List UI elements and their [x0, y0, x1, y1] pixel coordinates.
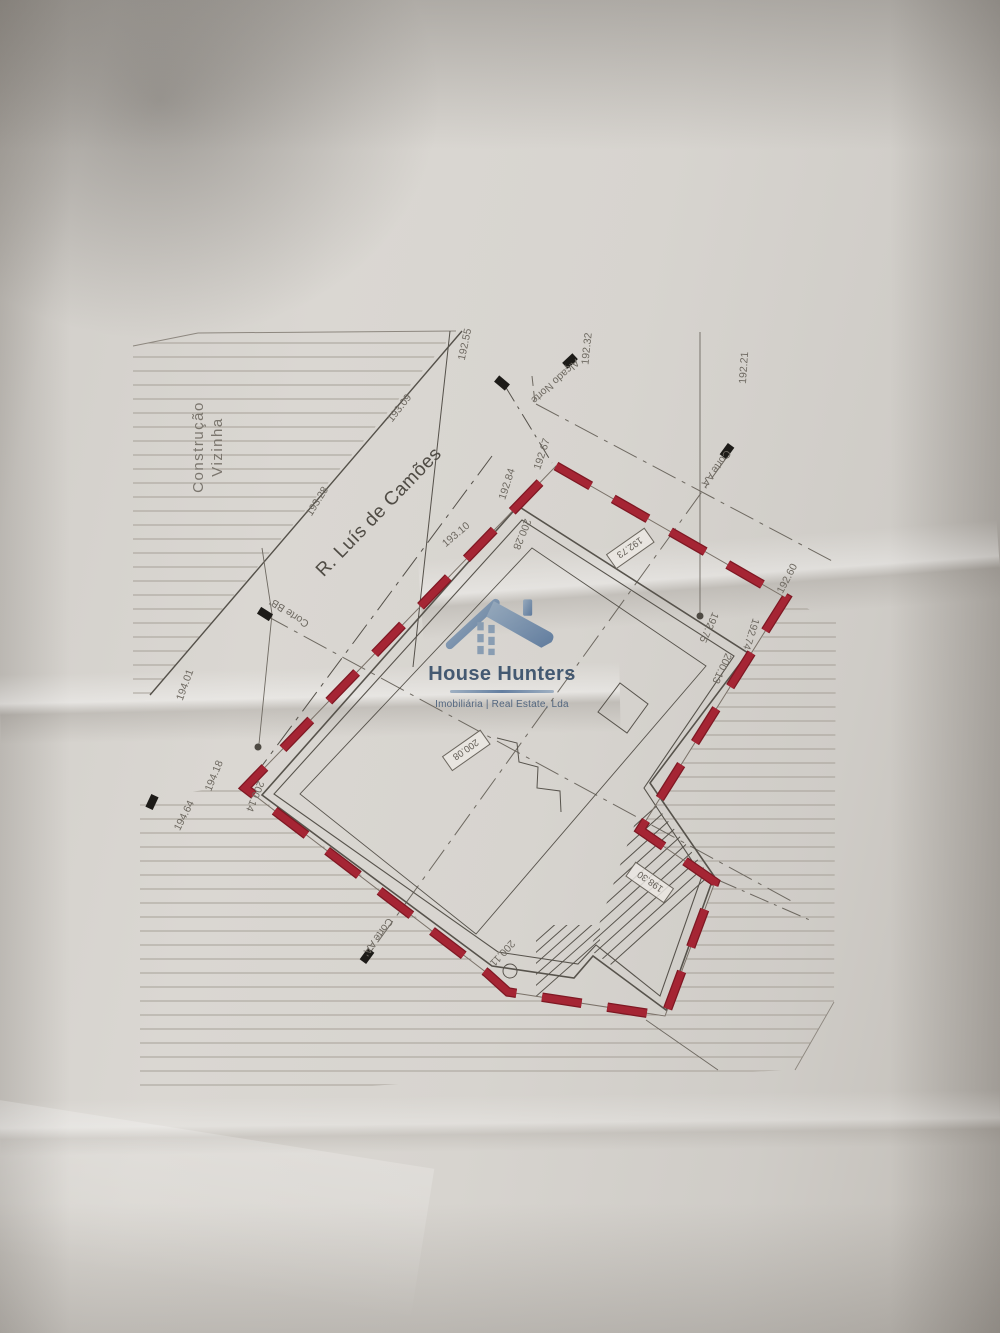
- window-grid: [477, 622, 494, 655]
- boxed-elevation-labels: 192.73200.08198.30: [443, 528, 674, 902]
- house-body-shape: [486, 601, 553, 648]
- house-hunters-watermark: House Hunters Imobiliária | Real Estate,…: [402, 592, 602, 710]
- survey-flag-icon: [494, 375, 510, 390]
- neighbor-construction-label-line1: Construção: [190, 401, 207, 493]
- survey-point-dot: [255, 744, 262, 751]
- interior-step-line: [497, 738, 561, 812]
- brand-name: House Hunters: [402, 663, 602, 686]
- elevation-label: 193.10: [440, 520, 472, 550]
- elevation-label: 192.55: [456, 327, 474, 361]
- elevation-label: 200.28: [510, 517, 533, 551]
- elevation-label: 192.84: [496, 467, 517, 501]
- elevation-label: 192.21: [737, 351, 751, 384]
- section-aa-label-top: Corte AA': [698, 447, 734, 490]
- brand-divider: [450, 690, 554, 693]
- photographed-site-plan: 192.73200.08198.30 ConstruçãoVizinhaR. L…: [0, 0, 1000, 1333]
- elevation-label: 192.67: [531, 437, 552, 471]
- section-bb-label: Corte BB': [267, 595, 311, 629]
- elevation-label: 192.60: [775, 561, 801, 595]
- elevation-label: 194.01: [174, 668, 196, 702]
- chimney-shape: [523, 599, 532, 615]
- corner-reference-circle: [503, 964, 517, 978]
- leader-line: [259, 548, 272, 744]
- small-staircase: [524, 874, 612, 1007]
- elevation-label: 192.32: [579, 332, 594, 365]
- neighbor-construction-label-line2: Vizinha: [209, 417, 226, 476]
- house-logo-icon: [442, 592, 562, 656]
- brand-tagline: Imobiliária | Real Estate, Lda: [402, 699, 602, 710]
- boxed-elevation-label: 192.73: [607, 528, 654, 568]
- elevation-label: 194.18: [203, 759, 226, 793]
- survey-point-dot: [697, 613, 704, 620]
- boxed-elevation-label: 200.08: [443, 730, 490, 770]
- boxed-elevation-label: 198.30: [626, 862, 673, 902]
- north-elevation-marker-label: Alçado Norte: [528, 356, 581, 406]
- survey-flag-icon: [257, 607, 273, 621]
- interior-column: [598, 683, 648, 733]
